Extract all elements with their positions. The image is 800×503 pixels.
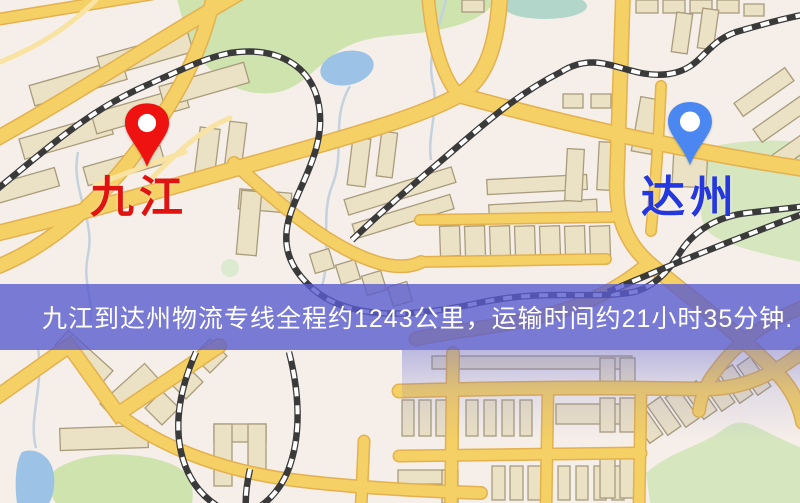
destination-place-label: 达州	[641, 176, 739, 220]
logistics-route-map-screenshot: 九江 达州 九江到达州物流专线全程约1243公里，运输时间约21小时35分钟.	[0, 0, 800, 503]
red-location-pin-icon	[124, 101, 170, 169]
route-info-text: 九江到达州物流专线全程约1243公里，运输时间约21小时35分钟.	[42, 299, 793, 335]
destination-pin[interactable]	[666, 101, 714, 166]
origin-pin[interactable]	[124, 101, 170, 169]
map-canvas	[0, 0, 800, 503]
origin-place-label: 九江	[90, 176, 188, 220]
route-info-banner: 九江到达州物流专线全程约1243公里，运输时间约21小时35分钟.	[0, 284, 800, 350]
blue-location-pin-icon	[666, 101, 714, 166]
